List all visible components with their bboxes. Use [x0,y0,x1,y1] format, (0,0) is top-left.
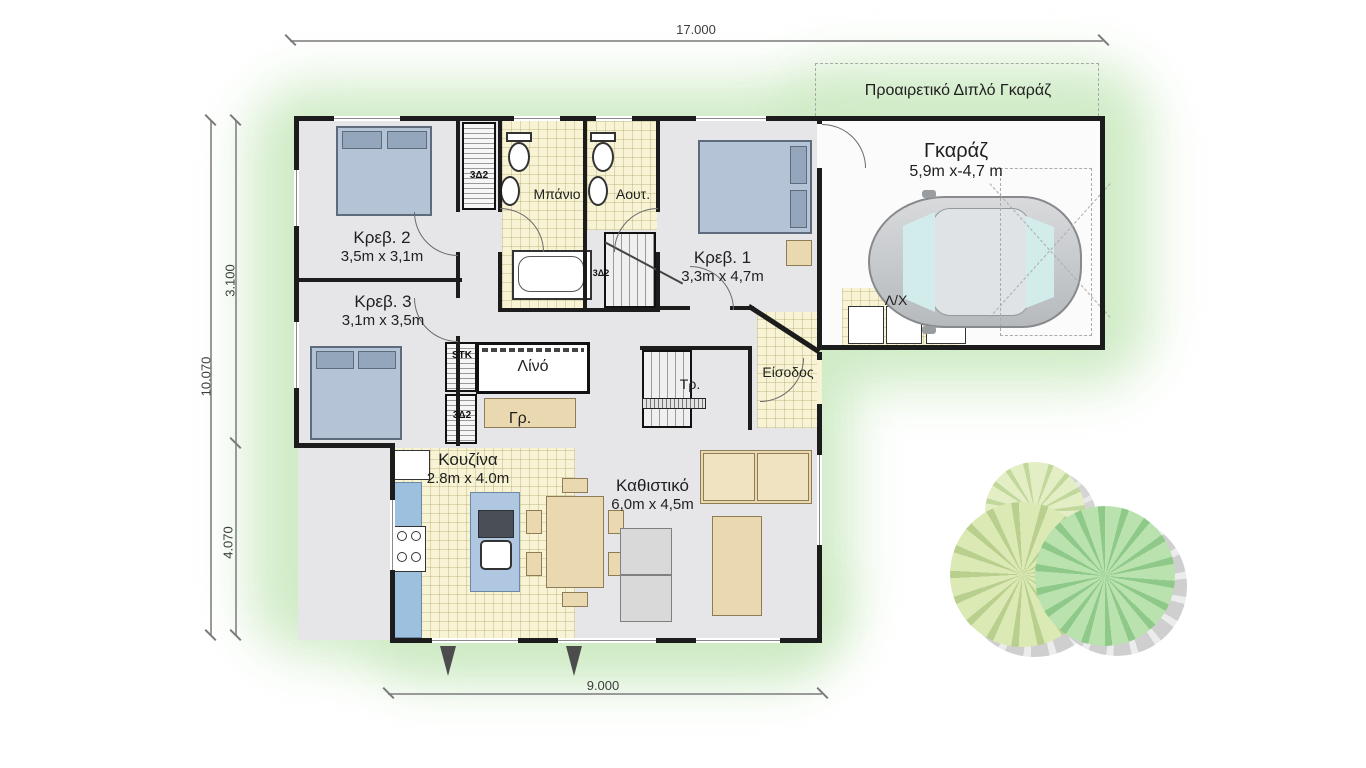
wall-bed1-bottom [656,306,690,310]
optional-garage-note: Προαιρετικό Διπλό Γκαράζ [827,82,1089,100]
label-laundry: Λ/Χ [866,292,926,308]
window [696,116,766,121]
burner [411,531,421,541]
burner [397,552,407,562]
wall-bedrooms [456,252,460,298]
label-garage: Γκαράζ 5,9m x-4,7 m [876,140,1036,181]
wardrobe-top [462,122,496,210]
label-wc: Αουτ. [603,186,663,202]
optional-bay-dashed [1000,168,1092,336]
car-mirror [922,190,936,198]
stair-railing [642,398,706,409]
bed3-size: 3,1m x 3,5m [313,312,453,329]
sofa-cushion [757,453,809,501]
bed3-pillow [316,351,354,369]
wall-stairs-top [640,346,752,350]
bed3-name: Κρεβ. 3 [313,292,453,312]
dining-chair [526,552,542,576]
car-mirror [922,326,936,334]
wall-step [294,443,394,448]
wall-bedrooms [456,116,460,212]
burner [411,552,421,562]
dining-chair [526,510,542,534]
living-name: Καθιστικό [585,476,720,496]
label-bed1: Κρεβ. 1 3,3m x 4,7m [650,248,795,285]
label-bed3: Κρεβ. 3 3,1m x 3,5m [313,292,453,329]
dim-bottom-label: 9.000 [553,678,653,693]
bed2-pillow [387,131,427,149]
garage-name: Γκαράζ [876,140,1036,163]
dining-chair [562,592,588,607]
window [817,455,822,545]
window [390,500,395,570]
label-closet-top: 3Δ2 [463,170,495,181]
window [294,170,299,226]
toilet-tank [590,132,616,142]
label-closet-stair: 3Δ2 [588,268,614,278]
living-size: 6,0m x 4,5m [585,496,720,513]
dim-line-bottom [388,693,822,695]
bed1-name: Κρεβ. 1 [650,248,795,268]
kitchen-name: Κουζίνα [408,450,528,470]
tree-green [1035,506,1175,646]
kitchen-size: 2.8m x 4.0m [408,470,528,487]
burner [397,531,407,541]
label-kitchen: Κουζίνα 2.8m x 4.0m [408,450,528,487]
dim-line-top [290,40,1103,42]
wall-bath-left [498,116,502,212]
sofa-vertical [712,516,762,616]
wall-left [294,116,299,448]
bed1-pillow [790,146,807,184]
toilet-bowl [592,142,614,172]
label-stairs: Τρ. [660,376,720,392]
toilet-tank [506,132,532,142]
bathtub-basin [518,256,584,292]
wall-garage-bottom [817,345,1105,350]
label-bed2: Κρεβ. 2 3,5m x 3,1m [312,228,452,265]
dim-left-total-label: 10.070 [199,347,214,407]
bed2-pillow [342,131,382,149]
dim-top-label: 17.000 [646,22,746,37]
label-living: Καθιστικό 6,0m x 4,5m [585,476,720,513]
window [294,322,299,388]
window [696,638,780,643]
label-linen: Λίνό [490,358,576,376]
dim-left-lower-label: 4.070 [221,513,236,573]
bed2-name: Κρεβ. 2 [312,228,452,248]
label-closet-mid: 3Δ2 [448,410,476,421]
toilet-bowl [508,142,530,172]
wall-bath-wc [583,116,587,312]
label-closet-stk: STK [448,350,476,361]
window [596,116,632,121]
garage-door-opening [817,124,822,168]
bed1-size: 3,3m x 4,7m [650,268,795,285]
window [334,116,400,121]
island-cooktop [478,510,514,538]
linen-shelf [482,348,584,352]
island-sink [480,540,512,570]
label-study: Γρ. [495,410,545,428]
washer [848,306,884,344]
dim-left-upper-label: 3.100 [223,251,238,311]
bed3-pillow [358,351,396,369]
wall-stairs-entry [748,346,752,430]
wall-bed2-bed3 [294,278,462,282]
bed2-size: 3,5m x 3,1m [312,248,452,265]
bed1-pillow [790,190,807,228]
wall-bath-bottom [498,308,660,312]
tv-unit-divider [620,574,672,576]
wall-bath-left [498,252,502,312]
patio-door [558,638,656,643]
floor-plan-canvas: 17.000 10.070 3.100 4.070 9.000 Προαιρετ… [0,0,1366,768]
window [514,116,560,121]
label-entry: Είσοδος [745,364,831,380]
wall-garage-right [1100,116,1105,350]
label-bath: Μπάνιο [517,186,597,202]
garage-size: 5,9m x-4,7 m [876,163,1036,181]
patio-door [432,638,518,643]
